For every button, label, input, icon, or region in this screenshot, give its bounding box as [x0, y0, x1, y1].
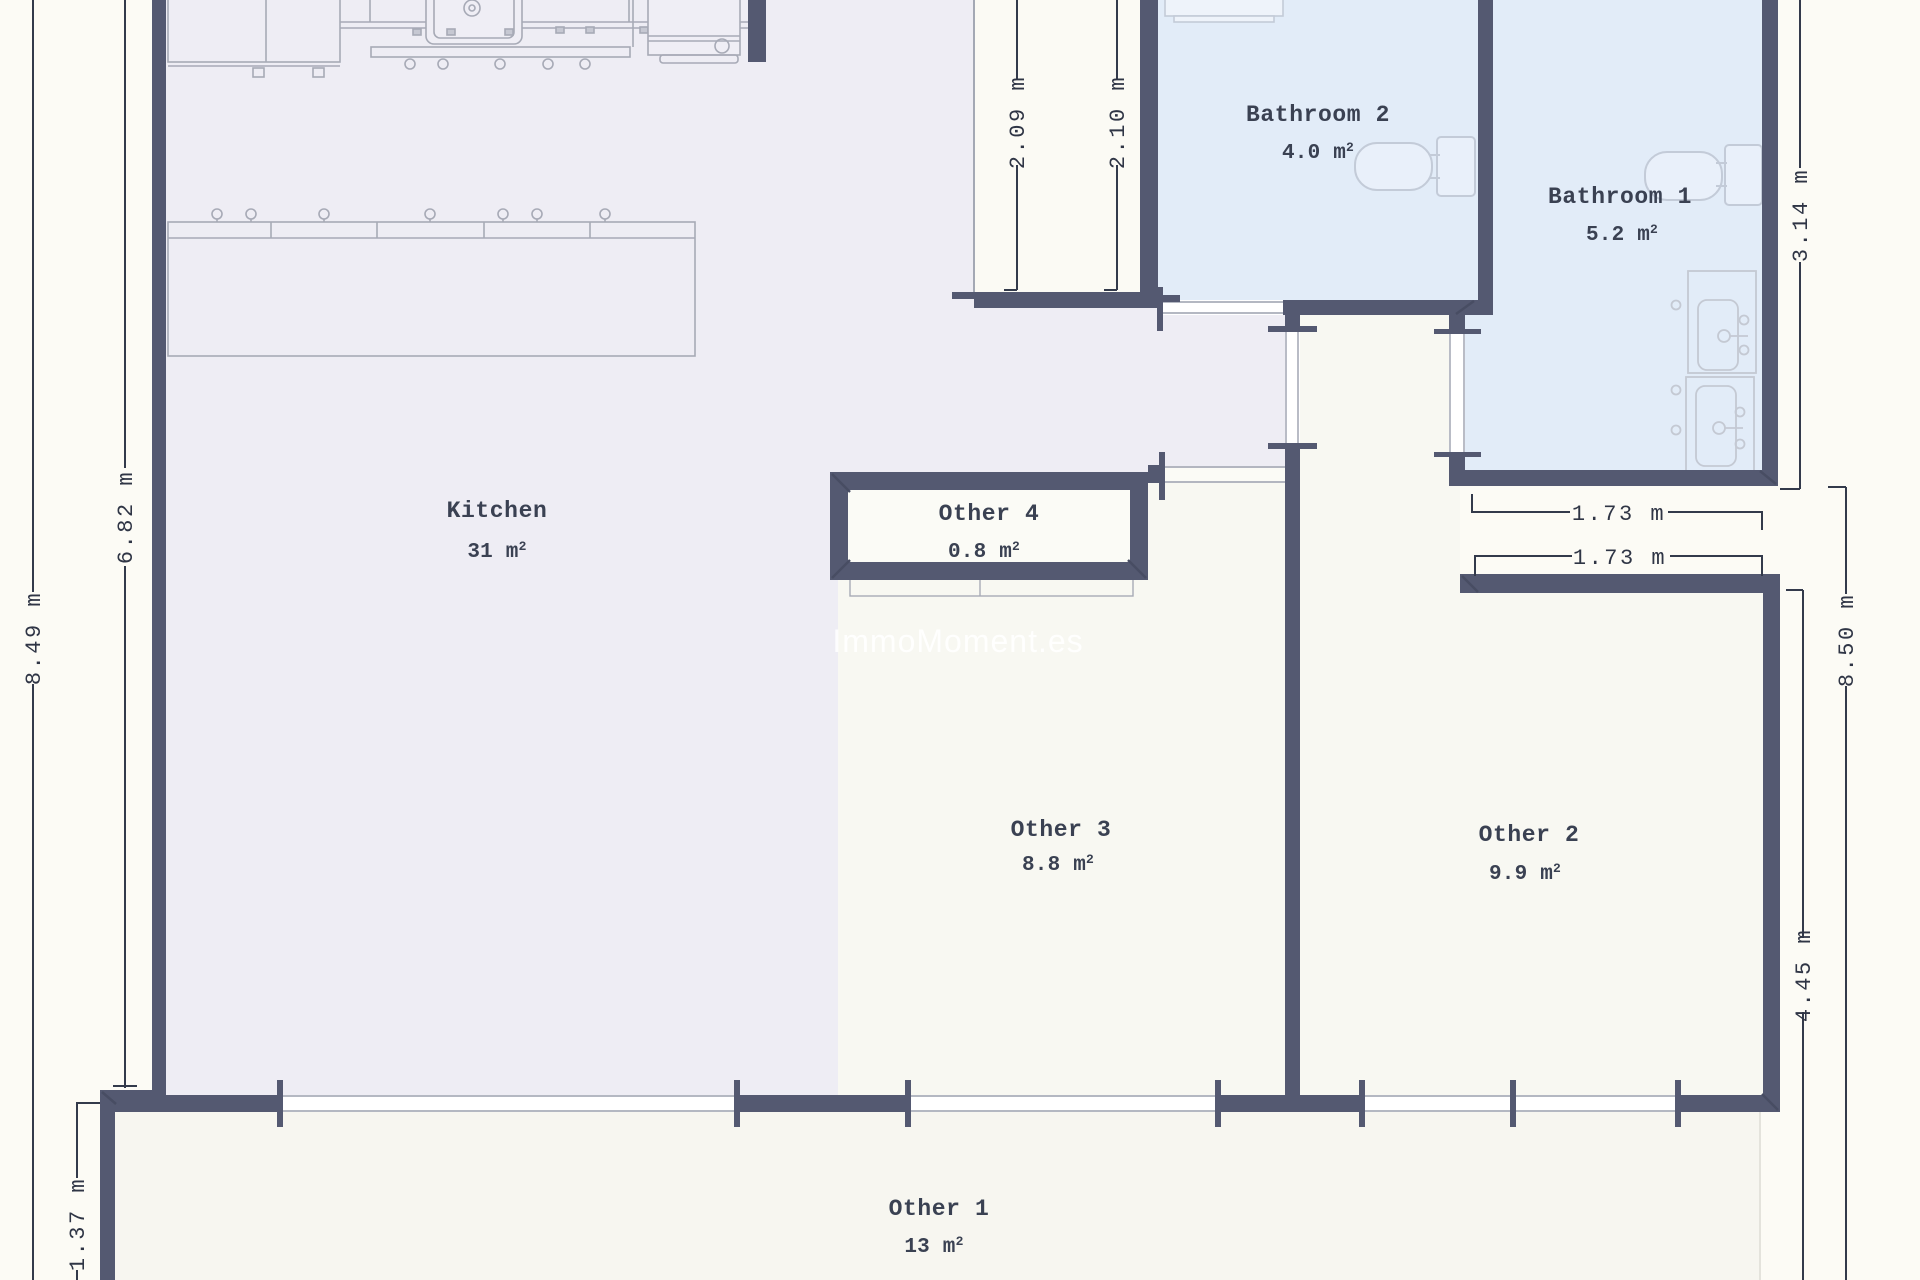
- svg-text:0.8 m2: 0.8 m2: [948, 539, 1020, 564]
- svg-text:31 m2: 31 m2: [467, 539, 526, 564]
- svg-text:Other 3: Other 3: [1011, 817, 1112, 843]
- svg-text:4.0 m2: 4.0 m2: [1282, 140, 1354, 165]
- svg-text:1.73 m: 1.73 m: [1572, 502, 1666, 527]
- svg-text:1.37 m: 1.37 m: [66, 1177, 91, 1271]
- svg-text:Kitchen: Kitchen: [447, 498, 548, 524]
- svg-text:4.45 m: 4.45 m: [1792, 928, 1817, 1022]
- svg-text:13 m2: 13 m2: [904, 1234, 963, 1259]
- svg-text:8.8 m2: 8.8 m2: [1022, 852, 1094, 877]
- svg-text:2.10 m: 2.10 m: [1106, 75, 1131, 169]
- svg-text:Other 1: Other 1: [889, 1196, 990, 1222]
- svg-text:3.14 m: 3.14 m: [1789, 168, 1814, 262]
- svg-text:1.73 m: 1.73 m: [1573, 546, 1667, 571]
- svg-text:Bathroom 2: Bathroom 2: [1246, 102, 1390, 128]
- svg-text:2.09 m: 2.09 m: [1006, 75, 1031, 169]
- svg-text:Other 4: Other 4: [939, 501, 1040, 527]
- svg-text:ImmoMoment.es: ImmoMoment.es: [832, 623, 1083, 659]
- svg-text:8.50 m: 8.50 m: [1835, 593, 1860, 687]
- svg-text:Bathroom 1: Bathroom 1: [1548, 184, 1692, 210]
- svg-text:5.2 m2: 5.2 m2: [1586, 222, 1658, 247]
- svg-text:9.9 m2: 9.9 m2: [1489, 861, 1561, 886]
- svg-text:6.82 m: 6.82 m: [114, 470, 139, 564]
- svg-text:8.49 m: 8.49 m: [22, 591, 47, 685]
- svg-text:Other 2: Other 2: [1479, 822, 1580, 848]
